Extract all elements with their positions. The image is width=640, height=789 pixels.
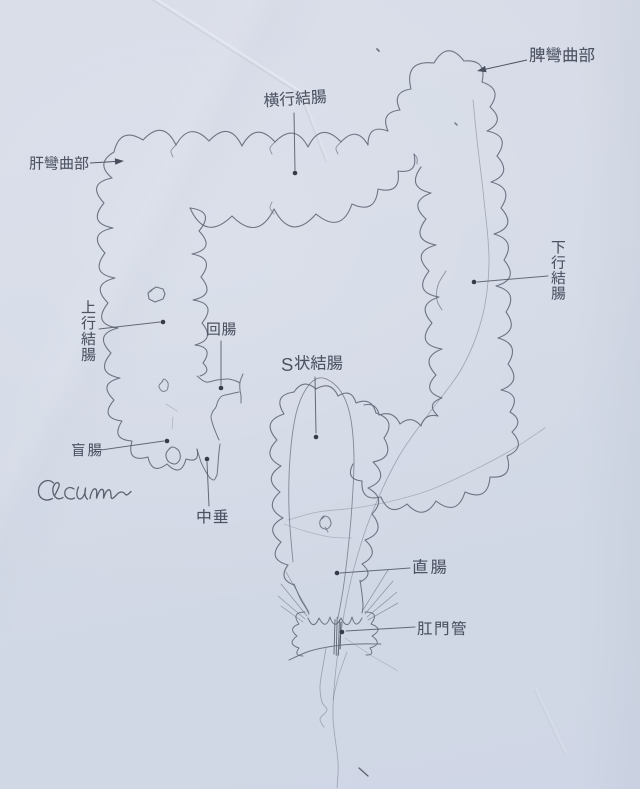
svg-text:S: S [281,354,293,375]
